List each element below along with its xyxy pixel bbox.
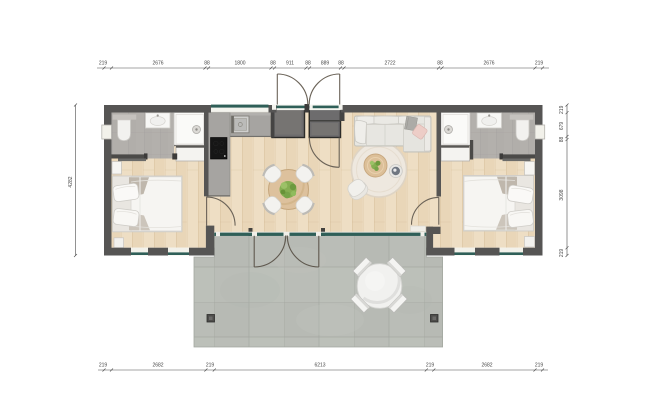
svg-text:219: 219 (535, 363, 544, 369)
svg-text:219: 219 (426, 363, 435, 369)
svg-text:911: 911 (286, 61, 294, 67)
svg-text:889: 889 (321, 61, 330, 67)
svg-text:88: 88 (338, 61, 344, 67)
svg-text:2682: 2682 (152, 363, 163, 369)
svg-text:1800: 1800 (234, 61, 245, 67)
svg-text:2722: 2722 (384, 61, 395, 67)
svg-text:88: 88 (437, 61, 443, 67)
svg-text:219: 219 (559, 249, 565, 258)
svg-text:88: 88 (270, 61, 276, 67)
svg-text:219: 219 (535, 61, 544, 67)
svg-text:4282: 4282 (68, 176, 74, 187)
svg-text:6213: 6213 (314, 363, 325, 369)
svg-text:219: 219 (99, 61, 108, 67)
svg-text:88: 88 (305, 61, 311, 67)
svg-text:219: 219 (99, 363, 108, 369)
svg-text:219: 219 (559, 105, 565, 114)
svg-text:88: 88 (204, 61, 210, 67)
svg-text:679: 679 (559, 122, 565, 131)
svg-text:3098: 3098 (559, 189, 565, 200)
svg-text:2682: 2682 (481, 363, 492, 369)
svg-text:2676: 2676 (152, 61, 163, 67)
svg-text:88: 88 (559, 137, 565, 143)
svg-text:2676: 2676 (483, 61, 494, 67)
svg-text:219: 219 (206, 363, 215, 369)
